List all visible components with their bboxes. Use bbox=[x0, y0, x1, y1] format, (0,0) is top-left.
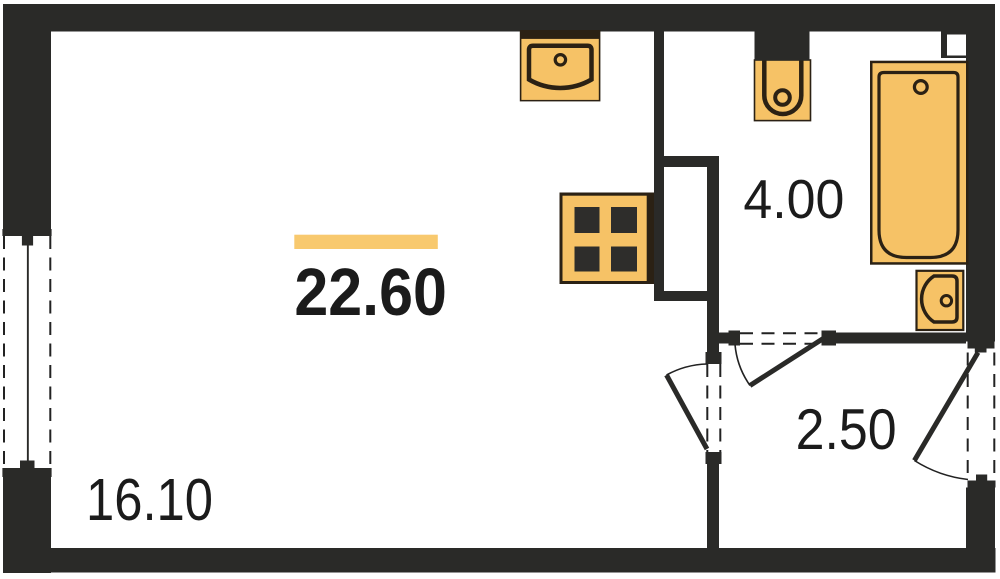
svg-text:22.60: 22.60 bbox=[294, 255, 447, 330]
svg-text:4.00: 4.00 bbox=[743, 168, 844, 230]
svg-text:2.50: 2.50 bbox=[796, 398, 897, 462]
svg-text:16.10: 16.10 bbox=[86, 466, 213, 533]
